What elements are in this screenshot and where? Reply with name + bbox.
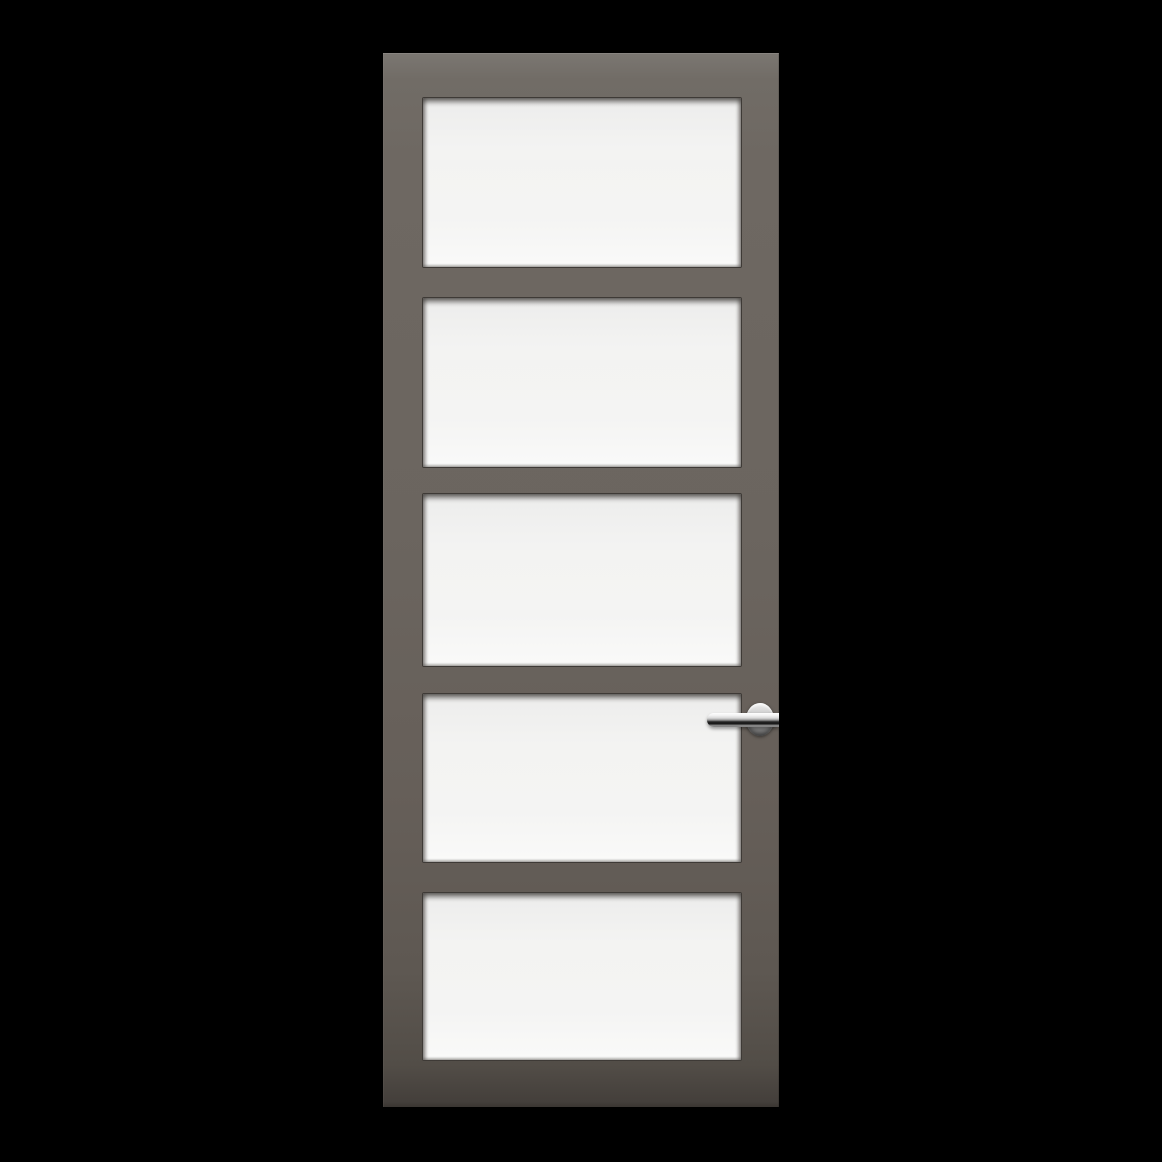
photo-canvas: { "meta": { "description": "Product phot…: [0, 0, 1162, 1162]
door: [383, 53, 779, 1107]
glass-panel-3: [422, 493, 742, 667]
glass-panel-1: [422, 97, 742, 268]
handle-rosette: [746, 703, 774, 736]
glass-panel-4: [422, 693, 742, 863]
glass-panel-2: [422, 297, 742, 468]
glass-panel-5: [422, 892, 742, 1061]
